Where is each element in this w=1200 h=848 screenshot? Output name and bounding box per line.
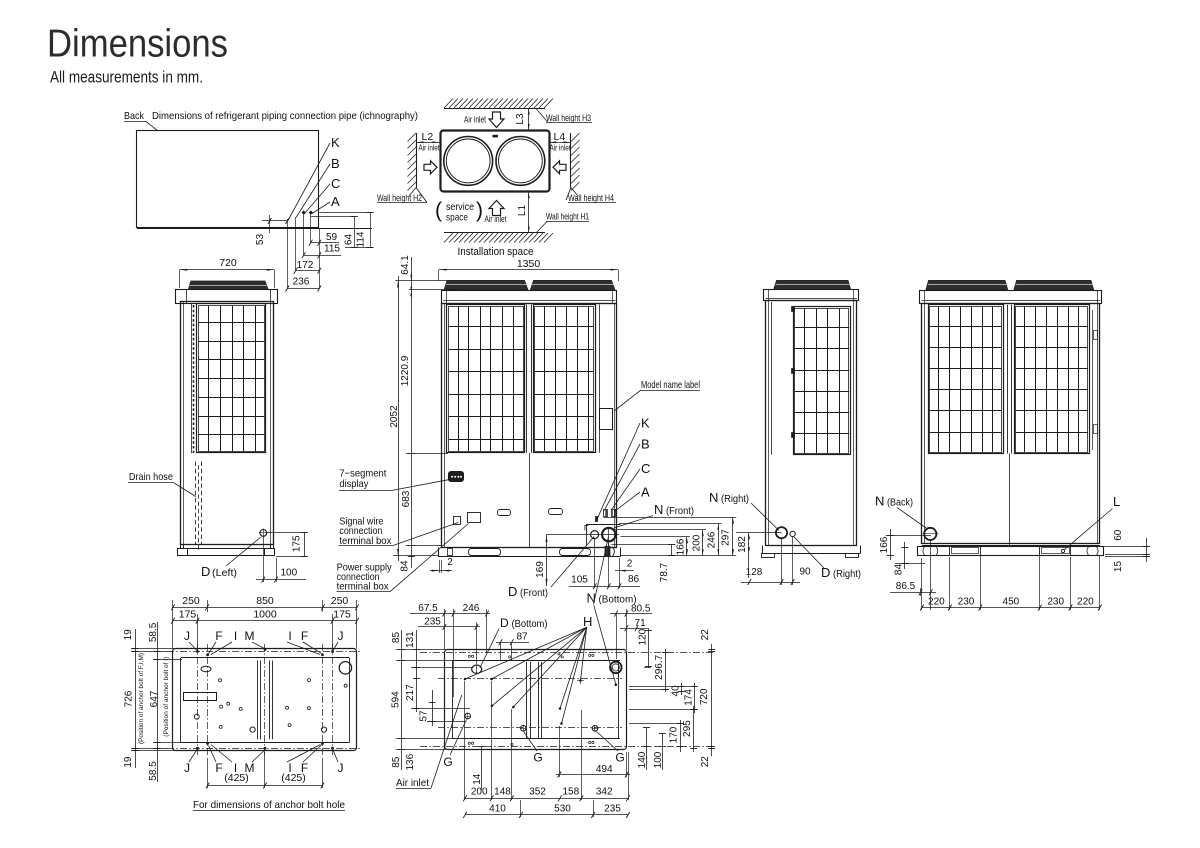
svg-text:display: display — [339, 478, 369, 490]
svg-text:683: 683 — [401, 490, 412, 507]
svg-text:(Front): (Front) — [666, 506, 694, 517]
svg-text:148: 148 — [494, 787, 511, 798]
svg-text:15: 15 — [1113, 561, 1124, 573]
svg-text:Drain hose: Drain hose — [129, 471, 173, 483]
svg-text:59: 59 — [326, 232, 338, 243]
svg-text:B: B — [331, 156, 340, 171]
svg-text:530: 530 — [554, 804, 571, 815]
svg-text:L2: L2 — [422, 131, 434, 143]
svg-text:296.7: 296.7 — [654, 654, 665, 679]
svg-text:64: 64 — [343, 234, 354, 246]
svg-text:19: 19 — [123, 629, 134, 641]
svg-text:115: 115 — [324, 244, 340, 255]
svg-text:53: 53 — [255, 234, 266, 246]
svg-text:19: 19 — [123, 756, 134, 768]
svg-text:90: 90 — [799, 567, 811, 578]
svg-text:(: ( — [435, 199, 442, 222]
svg-text:2: 2 — [447, 557, 453, 568]
svg-text:C: C — [331, 176, 340, 191]
svg-text:1220.9: 1220.9 — [400, 355, 411, 386]
svg-text:352: 352 — [529, 787, 546, 798]
svg-text:850: 850 — [256, 595, 274, 607]
svg-text:H: H — [583, 614, 592, 629]
svg-text:131: 131 — [405, 631, 416, 648]
svg-text:N: N — [587, 591, 596, 606]
svg-text:217: 217 — [405, 684, 416, 701]
svg-text:297: 297 — [721, 529, 732, 546]
svg-text:L1: L1 — [517, 205, 528, 217]
svg-text:246: 246 — [463, 603, 480, 614]
svg-text:80.5: 80.5 — [631, 604, 651, 615]
svg-text:86.5: 86.5 — [896, 581, 916, 592]
svg-text:200: 200 — [692, 534, 703, 551]
svg-text:169: 169 — [535, 561, 546, 578]
svg-text:F: F — [301, 629, 308, 643]
svg-text:J: J — [184, 761, 190, 775]
svg-text:(Right): (Right) — [833, 569, 861, 580]
svg-text:22: 22 — [700, 629, 711, 641]
svg-text:N: N — [654, 502, 663, 517]
svg-text:85: 85 — [391, 756, 402, 768]
svg-text:N: N — [709, 490, 718, 505]
svg-text:(Back): (Back) — [887, 498, 913, 509]
svg-text:87: 87 — [516, 631, 528, 642]
svg-text:Air inlet: Air inlet — [419, 144, 441, 153]
svg-text:terminal box: terminal box — [339, 535, 392, 547]
svg-text:(425): (425) — [281, 772, 306, 784]
svg-text:(Bottom): (Bottom) — [512, 619, 548, 630]
svg-text:Wall height H2: Wall height H2 — [377, 193, 422, 203]
svg-text:2: 2 — [627, 559, 633, 570]
svg-text:(Front): (Front) — [520, 588, 548, 599]
svg-text:Dimensions: Dimensions — [47, 23, 228, 66]
svg-text:(Right): (Right) — [721, 494, 749, 505]
svg-text:Installation space: Installation space — [458, 246, 534, 258]
svg-text:A: A — [331, 194, 340, 209]
svg-text:J: J — [338, 629, 344, 643]
svg-text:175: 175 — [333, 609, 351, 621]
svg-text:K: K — [641, 416, 650, 431]
svg-text:F: F — [215, 761, 222, 775]
svg-text:120: 120 — [637, 628, 648, 645]
svg-text:175: 175 — [291, 535, 302, 552]
svg-text:Air inlet: Air inlet — [396, 777, 429, 789]
svg-text:60: 60 — [1113, 529, 1124, 541]
svg-text:C: C — [641, 461, 650, 476]
svg-text:): ) — [476, 199, 483, 222]
svg-text:Air inlet: Air inlet — [464, 115, 486, 125]
svg-text:172: 172 — [297, 260, 314, 271]
svg-text:I: I — [234, 629, 237, 643]
svg-text:114: 114 — [355, 231, 366, 247]
svg-text:Air inlet: Air inlet — [485, 214, 507, 224]
svg-text:1000: 1000 — [253, 609, 277, 621]
svg-text:(Position of anchor bolt of I): (Position of anchor bolt of I) — [163, 657, 170, 737]
svg-text:Model name label: Model name label — [641, 379, 700, 391]
svg-text:Wall height H3: Wall height H3 — [546, 113, 591, 123]
svg-text:175: 175 — [179, 609, 197, 621]
svg-text:N: N — [875, 494, 884, 509]
svg-text:128: 128 — [746, 567, 763, 578]
svg-text:G: G — [533, 751, 542, 765]
svg-text:250: 250 — [331, 595, 349, 607]
svg-text:Back: Back — [124, 110, 145, 122]
svg-text:230: 230 — [1047, 597, 1064, 608]
svg-text:720: 720 — [699, 688, 710, 705]
svg-text:158: 158 — [562, 787, 579, 798]
svg-text:G: G — [443, 755, 452, 769]
svg-text:D: D — [508, 584, 517, 599]
svg-text:647: 647 — [149, 690, 160, 707]
svg-text:726: 726 — [124, 690, 135, 707]
svg-text:terminal box: terminal box — [337, 581, 390, 593]
svg-text:(Left): (Left) — [212, 568, 237, 579]
svg-text:M: M — [245, 629, 255, 643]
svg-text:105: 105 — [571, 575, 588, 586]
svg-text:720: 720 — [219, 257, 237, 269]
svg-text:136: 136 — [405, 753, 416, 770]
svg-text:1350: 1350 — [517, 258, 541, 270]
svg-text:L: L — [1113, 494, 1120, 509]
svg-text:450: 450 — [1003, 597, 1020, 608]
svg-text:22: 22 — [700, 756, 711, 768]
svg-text:L4: L4 — [554, 131, 566, 143]
svg-text:D: D — [201, 564, 210, 579]
svg-text:D: D — [821, 565, 830, 580]
svg-text:For dimensions of anchor bolt: For dimensions of anchor bolt hole — [193, 799, 345, 811]
svg-text:200: 200 — [471, 787, 488, 798]
svg-text:G: G — [615, 751, 624, 765]
svg-text:100: 100 — [280, 568, 297, 579]
svg-text:84: 84 — [894, 564, 905, 576]
svg-text:235: 235 — [424, 617, 441, 628]
svg-text:220: 220 — [1077, 597, 1094, 608]
svg-text:B: B — [641, 437, 650, 452]
svg-text:(Position of anchor bolt of F,: (Position of anchor bolt of F,I,M) — [138, 653, 145, 744]
svg-text:K: K — [331, 135, 340, 150]
svg-text:166: 166 — [879, 536, 890, 553]
svg-text:D: D — [500, 616, 509, 630]
svg-text:78.7: 78.7 — [659, 562, 670, 582]
svg-text:166: 166 — [676, 538, 687, 555]
svg-text:182: 182 — [737, 536, 748, 553]
svg-text:410: 410 — [489, 804, 506, 815]
svg-text:space: space — [446, 212, 468, 224]
svg-text:71: 71 — [635, 618, 647, 629]
svg-text:594: 594 — [391, 691, 402, 708]
svg-text:A: A — [641, 485, 650, 500]
svg-text:174: 174 — [683, 689, 694, 706]
svg-text:Air inlet: Air inlet — [550, 144, 572, 153]
svg-text:Wall height H1: Wall height H1 — [546, 212, 589, 222]
svg-text:L3: L3 — [515, 113, 526, 125]
svg-text:I: I — [288, 629, 291, 643]
svg-text:246: 246 — [707, 531, 718, 548]
svg-text:57: 57 — [419, 710, 430, 722]
svg-text:236: 236 — [293, 277, 310, 288]
svg-text:F: F — [215, 629, 222, 643]
svg-text:235: 235 — [604, 804, 621, 815]
svg-text:All measurements in mm.: All measurements in mm. — [50, 68, 203, 87]
svg-text:J: J — [184, 629, 190, 643]
svg-text:86: 86 — [628, 574, 640, 585]
svg-text:64.1: 64.1 — [400, 255, 411, 275]
svg-text:494: 494 — [596, 764, 613, 775]
svg-text:250: 250 — [182, 595, 200, 607]
svg-text:295: 295 — [682, 720, 693, 737]
svg-text:J: J — [338, 761, 344, 775]
svg-text:67.5: 67.5 — [418, 603, 438, 614]
svg-text:342: 342 — [596, 787, 613, 798]
svg-text:Dimensions of refrigerant pipi: Dimensions of refrigerant piping connect… — [152, 110, 418, 122]
svg-text:230: 230 — [958, 597, 975, 608]
svg-text:84: 84 — [399, 560, 410, 572]
svg-text:220: 220 — [928, 597, 945, 608]
svg-text:170: 170 — [668, 726, 679, 743]
svg-text:Wall height H4: Wall height H4 — [568, 193, 614, 203]
svg-text:(425): (425) — [224, 772, 249, 784]
svg-text:85: 85 — [391, 632, 402, 644]
